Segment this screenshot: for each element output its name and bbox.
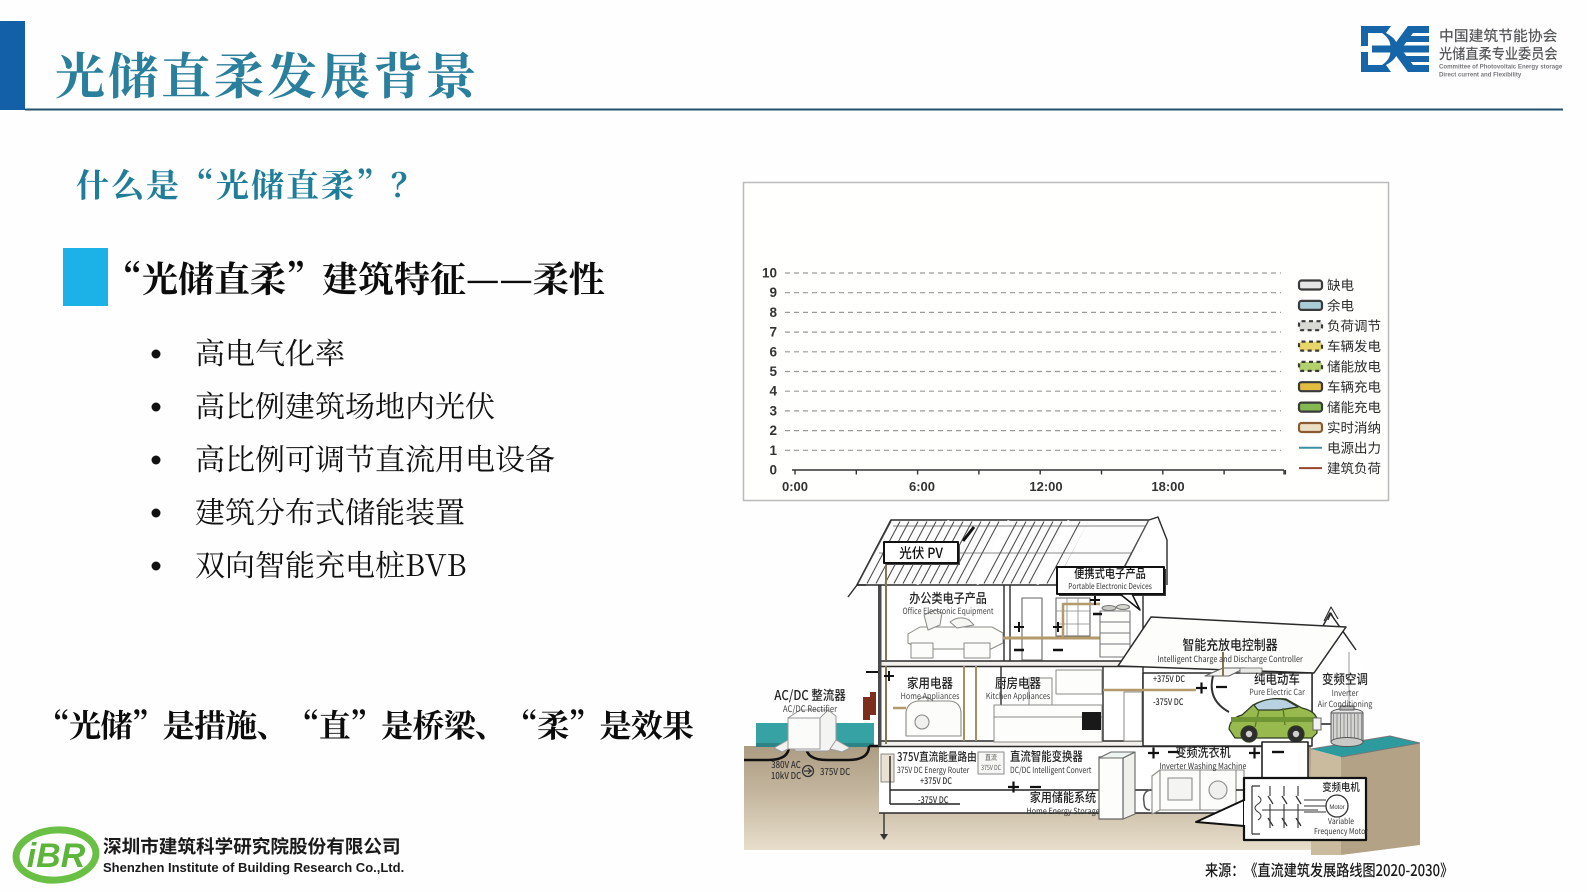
svg-text:iBR: iBR — [27, 837, 86, 875]
svg-text:Motor: Motor — [1329, 805, 1344, 811]
svg-text:5: 5 — [769, 364, 777, 379]
svg-text:Direct current and Flexibility: Direct current and Flexibility — [1439, 72, 1522, 79]
svg-text:10: 10 — [762, 266, 777, 281]
svg-text:Committee of Photovoltaic Ener: Committee of Photovoltaic Energy storage — [1439, 64, 1563, 71]
svg-text:7: 7 — [769, 325, 777, 340]
svg-text:6:00: 6:00 — [909, 479, 935, 494]
svg-text:9: 9 — [769, 285, 777, 300]
svg-text:18:00: 18:00 — [1151, 479, 1184, 494]
svg-text:12:00: 12:00 — [1029, 479, 1062, 494]
svg-text:Shenzhen Institute of Building: Shenzhen Institute of Building Research … — [103, 860, 404, 875]
svg-text:0:00: 0:00 — [782, 479, 808, 494]
svg-text:2: 2 — [769, 423, 777, 438]
svg-text:1: 1 — [769, 443, 777, 458]
svg-text:0: 0 — [769, 463, 777, 478]
svg-text:4: 4 — [769, 384, 777, 399]
svg-text:8: 8 — [769, 305, 777, 320]
svg-text:3: 3 — [769, 403, 777, 418]
svg-text:6: 6 — [769, 344, 777, 359]
